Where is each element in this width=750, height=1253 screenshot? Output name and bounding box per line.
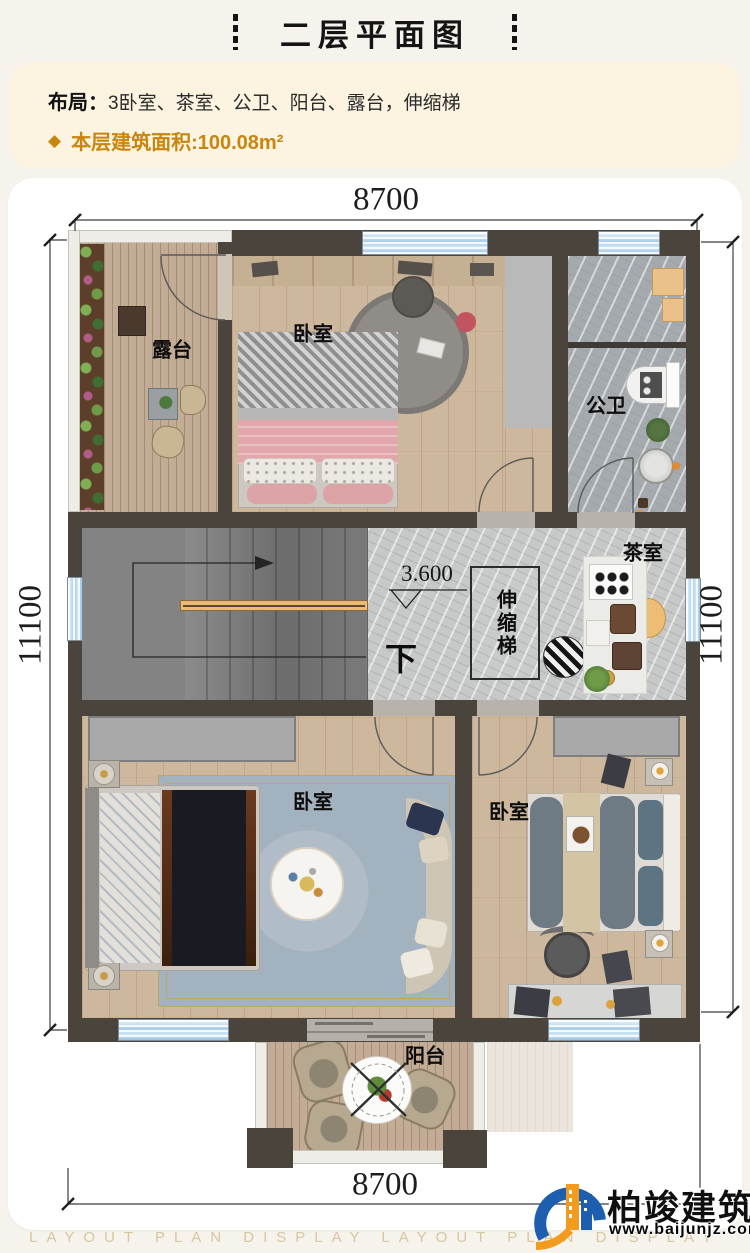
wall-terrace-bedroom xyxy=(218,320,232,512)
bathroom-plant xyxy=(646,418,670,442)
diamond-icon: ◆ xyxy=(48,131,61,151)
lamp-left-bottom xyxy=(93,965,115,987)
window-bottom-right xyxy=(548,1019,640,1041)
bed-left-dark-blanket xyxy=(162,790,256,966)
room-label-bathroom: 公卫 xyxy=(586,390,626,419)
wardrobe-item-1 xyxy=(251,261,278,278)
bedroom-top-red-stool xyxy=(456,312,476,332)
tea-stool-1 xyxy=(610,604,636,634)
terrace-flower-bed xyxy=(80,244,104,510)
desk-item-gold-1 xyxy=(552,996,562,1006)
bed-right-headboard xyxy=(663,795,680,930)
room-label-bedroom-top: 卧室 xyxy=(293,318,333,347)
wall-bedroom-divider xyxy=(455,716,472,1018)
company-logo-icon xyxy=(530,1172,610,1250)
layout-value: 3卧室、茶室、公卫、阳台、露台，伸缩梯 xyxy=(108,93,461,114)
bedroom-right-wardrobe xyxy=(553,716,680,757)
bed-right-pillow-2 xyxy=(638,866,663,926)
bed-top-pillow-2 xyxy=(321,458,395,484)
page-header: 二层平面图 xyxy=(0,8,750,56)
wardrobe-item-3 xyxy=(470,263,494,276)
tea-stove xyxy=(589,564,633,600)
bed-right-tray xyxy=(566,816,594,852)
tea-stool-2 xyxy=(612,642,642,670)
bed-top-pink-pillow-1 xyxy=(247,484,317,504)
layout-label: 布局： xyxy=(48,92,108,114)
dim-left: 11100 xyxy=(13,585,50,665)
sofa-pillow-beige-1 xyxy=(418,836,450,864)
elevation-value: 3.600 xyxy=(401,561,453,587)
bathroom-door-gap xyxy=(577,512,635,528)
bed-right-long-pillow-2 xyxy=(600,796,635,929)
balcony-stub-left xyxy=(247,1128,293,1168)
lamp-right-bottom xyxy=(651,934,669,952)
balcony-table xyxy=(342,1056,412,1124)
room-label-terrace: 露台 xyxy=(152,334,192,363)
lamp-left-top xyxy=(93,763,115,785)
bedroom-right-door-gap xyxy=(477,700,539,716)
balcony-stub-right xyxy=(443,1130,487,1168)
terrace-rail-top xyxy=(68,230,232,243)
bathroom-sink xyxy=(638,448,674,484)
window-left-stair xyxy=(67,577,83,641)
bed-left-blanket-edge-1 xyxy=(162,790,172,966)
title-dash-bar-left xyxy=(233,14,238,50)
ladder-box: 伸缩梯 xyxy=(470,566,540,680)
wall-terrace-stub xyxy=(218,242,232,254)
toilet-lid xyxy=(640,372,662,398)
bathroom-shelf-lower xyxy=(662,298,684,322)
room-label-bedroom-right: 卧室 xyxy=(489,796,529,825)
wall-bathroom-divider xyxy=(568,342,686,348)
bed-right-long-pillow-1 xyxy=(530,797,563,928)
room-label-tearoom: 茶室 xyxy=(623,537,663,566)
terrace-door-gap xyxy=(218,254,232,320)
dim-bottom: 8700 xyxy=(352,1167,418,1204)
window-top-bathroom xyxy=(598,231,660,255)
balcony-sliding-door xyxy=(307,1019,433,1041)
bedroom-right-frame-bottom xyxy=(602,950,633,984)
room-label-balcony: 阳台 xyxy=(405,1040,445,1069)
dim-top: 8700 xyxy=(353,182,419,219)
stair-handrail xyxy=(180,600,368,611)
dim-right: 11100 xyxy=(694,585,731,665)
sink-faucet xyxy=(672,462,680,470)
desk-laptop-2 xyxy=(613,986,651,1017)
terrace-table xyxy=(148,388,178,420)
bed-right-pillow-1 xyxy=(638,800,663,860)
bed-left-blanket-edge-2 xyxy=(246,790,256,966)
bedroom-top-pouf xyxy=(392,276,434,318)
bedroom-top-door-gap xyxy=(477,512,535,528)
tea-box xyxy=(586,620,610,646)
room-label-ladder: 伸缩梯 xyxy=(491,589,520,658)
stair-flight-upper xyxy=(185,528,368,602)
layout-info-row: 布局：3卧室、茶室、公卫、阳台、露台，伸缩梯 xyxy=(48,86,461,115)
area-text: 本层建筑面积:100.08m² xyxy=(71,126,283,155)
stair-flight-lower xyxy=(185,611,368,700)
layout-info-box: 布局：3卧室、茶室、公卫、阳台、露台，伸缩梯 ◆ 本层建筑面积:100.08m² xyxy=(10,62,740,168)
bedroom-left-wardrobe xyxy=(88,716,296,762)
area-info-row: ◆ 本层建筑面积:100.08m² xyxy=(48,126,283,155)
bathroom-shelf-upper xyxy=(652,268,684,296)
bed-top-pink-pillow-2 xyxy=(323,484,393,504)
window-bottom-left xyxy=(118,1019,229,1041)
title-dash-bar-right xyxy=(512,14,517,50)
floor-plan-page: 二层平面图 布局：3卧室、茶室、公卫、阳台、露台，伸缩梯 ◆ 本层建筑面积:10… xyxy=(0,0,750,1253)
bed-left-pillows xyxy=(100,793,160,963)
desk-item-gold-2 xyxy=(606,1000,615,1009)
page-title: 二层平面图 xyxy=(280,10,470,55)
bedroom-left-coffee-table xyxy=(270,847,344,921)
tearoom-striped-rug xyxy=(543,636,585,678)
bedroom-top-closet-strip xyxy=(505,256,552,428)
balcony-deck-shadow xyxy=(487,1042,573,1132)
company-logo-site: www.baijunjz.com xyxy=(609,1221,750,1239)
bathroom-item-1 xyxy=(638,498,648,508)
bedroom-top-floor-step xyxy=(505,428,552,512)
stair-down-label: 下 xyxy=(385,634,417,680)
room-label-bedroom-left: 卧室 xyxy=(293,786,333,815)
terrace-rail-left xyxy=(68,230,80,512)
wall-bedroom-bathroom xyxy=(552,256,568,512)
bed-top-pillow-1 xyxy=(243,458,317,484)
terrace-chair-right xyxy=(180,385,206,415)
window-top-bedroom xyxy=(362,231,488,255)
bed-right-runner xyxy=(563,793,600,932)
desk-laptop-1 xyxy=(514,986,551,1017)
bed-left-headboard xyxy=(85,788,99,968)
tearoom-plant xyxy=(584,666,610,692)
lamp-right-top xyxy=(651,762,669,780)
bedroom-left-door-gap xyxy=(373,700,435,716)
terrace-planter xyxy=(118,306,146,336)
toilet-tank xyxy=(666,362,680,408)
